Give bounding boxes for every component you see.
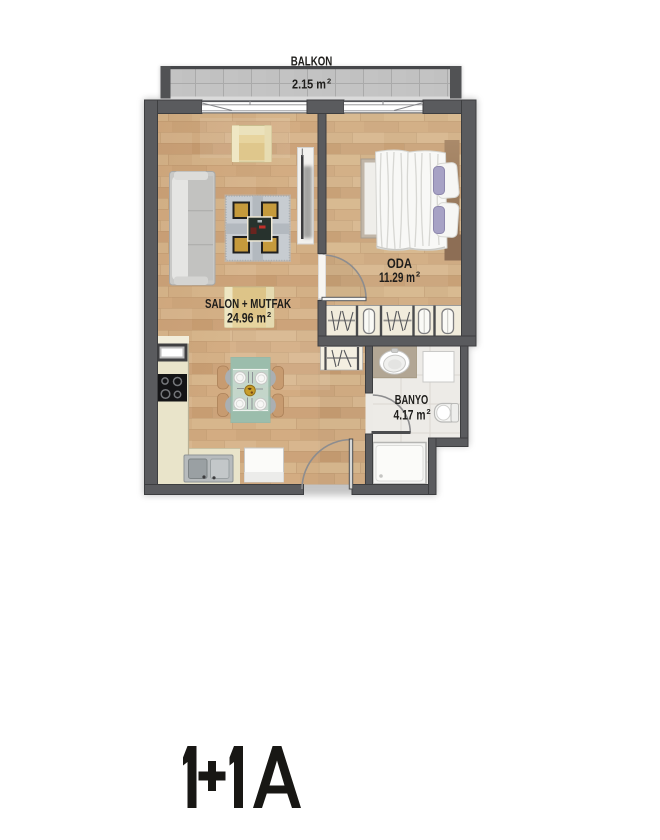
svg-text:11.29 m: 11.29 m [379,270,415,285]
svg-text:ODA: ODA [387,256,412,271]
svg-text:4.17 m: 4.17 m [394,408,426,423]
svg-text:SALON + MUTFAK: SALON + MUTFAK [205,296,291,311]
svg-text:2.15 m: 2.15 m [292,77,326,92]
svg-text:BANYO: BANYO [395,392,429,407]
svg-text:2: 2 [267,310,271,319]
svg-text:2: 2 [327,77,331,86]
svg-text:2: 2 [416,270,420,279]
svg-text:2: 2 [427,407,431,416]
svg-text:BALKON: BALKON [291,55,333,69]
svg-text:24.96 m: 24.96 m [227,311,266,326]
